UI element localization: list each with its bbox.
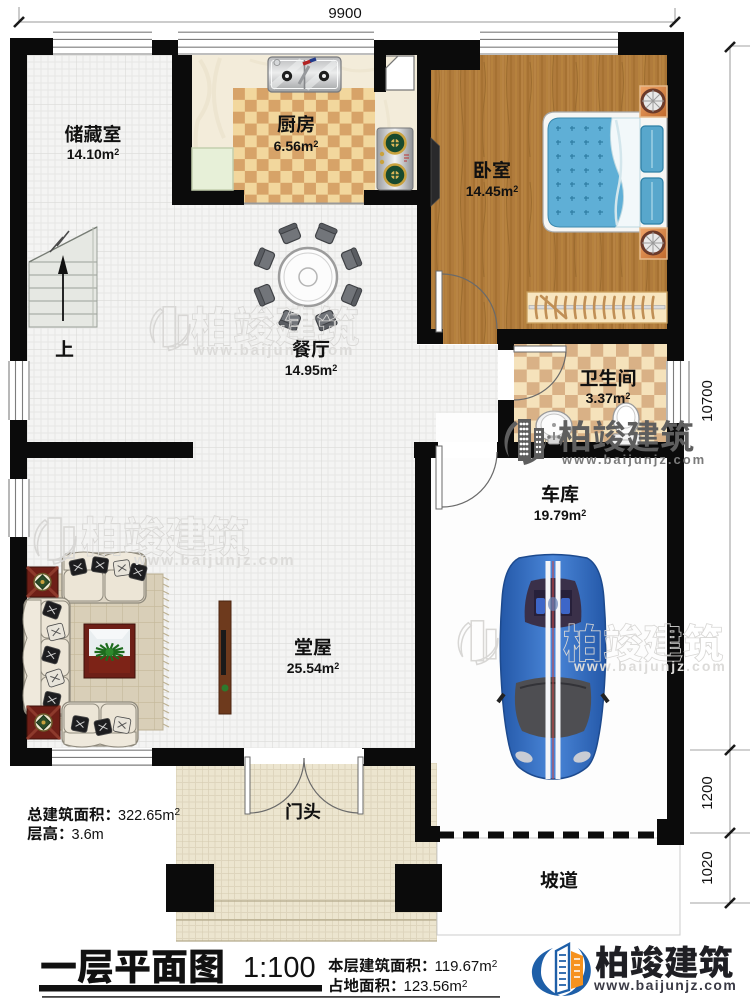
- svg-text:14.10m2: 14.10m2: [67, 146, 120, 162]
- svg-text:www.baijunjz.com: www.baijunjz.com: [561, 452, 706, 467]
- svg-text:6.56m2: 6.56m2: [274, 138, 319, 154]
- svg-text:www.baijunjz.com: www.baijunjz.com: [133, 552, 295, 569]
- svg-text:14.45m2: 14.45m2: [466, 183, 519, 199]
- svg-text:123.56m2: 123.56m2: [404, 978, 468, 995]
- svg-text:1020: 1020: [699, 851, 716, 884]
- svg-text:www.baijunjz.com: www.baijunjz.com: [192, 342, 354, 359]
- svg-text:3.37m2: 3.37m2: [586, 390, 631, 406]
- svg-text:9900: 9900: [328, 5, 361, 22]
- svg-text:19.79m2: 19.79m2: [534, 507, 587, 523]
- svg-text:14.95m2: 14.95m2: [285, 362, 338, 378]
- svg-text:3.6m: 3.6m: [72, 827, 104, 843]
- svg-text:10700: 10700: [699, 380, 716, 422]
- svg-text:www.baijunjz.com: www.baijunjz.com: [573, 658, 727, 674]
- svg-text:25.54m2: 25.54m2: [287, 660, 340, 676]
- svg-text:119.67m2: 119.67m2: [435, 958, 498, 975]
- svg-text:1200: 1200: [699, 776, 716, 809]
- svg-text:1:100: 1:100: [243, 952, 316, 984]
- svg-text:www.baijunjz.com: www.baijunjz.com: [593, 977, 737, 993]
- svg-text:322.65m2: 322.65m2: [118, 807, 180, 824]
